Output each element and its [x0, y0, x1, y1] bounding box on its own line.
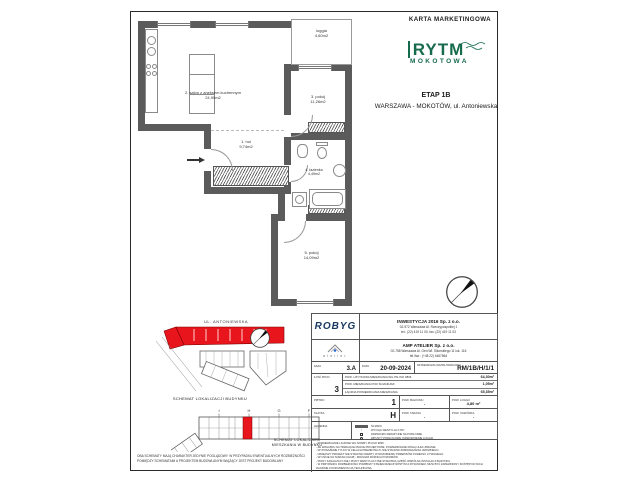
architect-row: atelier AMP ATELIER Sp. z o.o. 02-758 Wa… — [312, 340, 498, 362]
legend-row: LEGENDA ŚCIANKI ↑ WYCIĄG WENTYLACYJNY DR… — [312, 422, 498, 440]
site-schematic-caption: SCHEMAT LOKALIZACJI BUDYNKU — [155, 396, 265, 401]
project-logo-text: RYTM — [408, 41, 465, 58]
atelier-logo: atelier — [323, 344, 348, 358]
area-line: POW. UŻYTKOWA MIESZKANIA WG PN-ISO 98366… — [343, 374, 497, 381]
wall-segment — [284, 137, 291, 165]
garden-cell: POW. OGRÓDKA- — [450, 409, 498, 421]
revision-door-icon — [355, 433, 368, 436]
wall-segment — [306, 214, 352, 221]
areas-list: POW. UŻYTKOWA MIESZKANIA WG PN-ISO 98366… — [343, 374, 498, 395]
section-letter: G — [277, 408, 280, 413]
area-line: ŁĄCZNA POWIERZCHNIA MIESZKANIA65,35m² — [343, 389, 497, 395]
area-line: POW. MIESZKANIA POD ŚCIANKAMI1,05m² — [343, 381, 497, 388]
atelier-house-icon — [327, 344, 343, 353]
logo-waves-icon — [460, 41, 490, 53]
staircase-cell: KLATKAH — [312, 409, 400, 421]
wall-segment — [271, 214, 278, 306]
wardrobe-hatch — [308, 122, 345, 133]
door-arc — [284, 221, 306, 243]
building-wing — [171, 433, 202, 452]
island-divider — [189, 74, 215, 75]
toilet-icon — [317, 147, 327, 159]
room-label-pokoj3: 3. pokój11,26m2 — [298, 94, 338, 104]
loggia-outline — [291, 19, 352, 65]
wall-segment — [138, 124, 211, 131]
washer-drum-icon — [295, 195, 304, 204]
compass-icon — [249, 327, 271, 349]
window-marker — [215, 21, 249, 28]
marketing-card-page: KARTA MARKETINGOWA RYTM MOKOTOWA ETAP 1B… — [130, 11, 498, 471]
room-label-salon: 2. salon z aneksem kuchennym24,90m2 — [183, 90, 243, 100]
highlighted-unit — [243, 417, 252, 439]
legend-title-cell: LEGENDA — [312, 422, 352, 439]
section-letter: H — [248, 408, 251, 413]
street-line — [156, 341, 196, 391]
wall-segment — [284, 64, 291, 115]
stove-burner-icon — [152, 71, 157, 76]
washbasin-icon — [297, 144, 308, 158]
section-letter: I — [218, 408, 219, 413]
stove-burner-icon — [146, 71, 151, 76]
floor-row: PIĘTRO1 POW. BALKONU- POW. LOGGII4,80 m² — [312, 396, 498, 409]
vent-arrow-icon: ↑ — [355, 429, 368, 432]
room-label-loggia: loggia4,60m2 — [299, 28, 344, 38]
room-label-lazienka: 4. łazienka4,49m2 — [295, 168, 333, 177]
legend-items: ŚCIANKI ↑ WYCIĄG WENTYLACYJNY DRZWICZKI … — [352, 422, 498, 439]
door-arc — [211, 149, 233, 171]
page-title: KARTA MARKETINGOWA — [409, 16, 491, 23]
staircase-row: KLATKAH POW. TARASU- POW. OGRÓDKA- — [312, 409, 498, 422]
entrance-arrowhead-icon — [199, 157, 205, 163]
table-disclaimer: - POWIERZCHNIE LICZONE WG NORMY PN-ISO 9… — [312, 440, 498, 472]
date-cell: DATA20-09-2024 — [360, 362, 415, 373]
architect-info: AMP ATELIER Sp. z o.o. 02-758 Warszawa A… — [360, 340, 498, 361]
floor-plan: 1. hol9,74m2 2. salon z aneksem kuchenny… — [131, 12, 361, 312]
areas-row: ILOŚĆ POKOI 3 POW. UŻYTKOWA MIESZKANIA W… — [312, 374, 498, 396]
wall-segment — [204, 187, 291, 194]
developer-info: INWESTYCJA 2016 Sp. z o.o. 02-972 Warsza… — [360, 314, 498, 339]
floor-cell: PIĘTRO1 — [312, 396, 400, 408]
wall-segment — [345, 64, 352, 306]
project-address: WARSZAWA - MOKOTÓW, ul. Antoniewska — [359, 103, 513, 110]
room-label-pokoj5: 5. pokój14,09m2 — [289, 250, 334, 260]
room-label-hol: 1. hol9,74m2 — [226, 139, 266, 149]
compass-icon — [444, 274, 480, 310]
faza-cell: FAZA3.A — [312, 362, 360, 373]
loggia-cell: POW. LOGGII4,80 m² — [450, 396, 498, 408]
rooms-count-cell: ILOŚĆ POKOI 3 — [312, 374, 343, 395]
stove-burner-icon — [152, 64, 157, 69]
window-marker — [157, 21, 191, 28]
sink-icon — [147, 47, 156, 56]
building-outline — [250, 351, 286, 385]
sink-icon — [147, 36, 156, 45]
balcony-cell: POW. BALKONU- — [400, 396, 450, 408]
wall-segment — [204, 124, 211, 149]
developer-row: ROBYG INWESTYCJA 2016 Sp. z o.o. 02-972 … — [312, 314, 498, 340]
site-schematic: UL. ANTONIEWSKA — [146, 315, 306, 395]
wall-segment — [138, 21, 145, 131]
unit-info-table: ROBYG INWESTYCJA 2016 Sp. z o.o. 02-972 … — [311, 313, 498, 472]
stove-burner-icon — [146, 64, 151, 69]
architect-logo-cell: atelier — [312, 340, 360, 361]
toilet-tank-icon — [316, 142, 328, 146]
street-label: UL. ANTONIEWSKA — [204, 319, 248, 324]
terrace-cell: POW. TARASU- — [400, 409, 450, 421]
kitchen-island — [189, 54, 215, 114]
window-marker — [296, 299, 334, 306]
project-logo-subtext: MOKOTOWA — [410, 58, 496, 65]
bathtub-inner — [312, 192, 343, 206]
developer-logo-cell: ROBYG — [312, 314, 360, 339]
boiler-icon — [333, 164, 346, 177]
window-marker — [298, 64, 332, 71]
room-boundary-line — [211, 130, 284, 131]
robyg-logo: ROBYG — [315, 321, 357, 332]
phase-row: FAZA3.A DATA20-09-2024 NR MIESZKANIA (NA… — [312, 362, 498, 374]
project-stage: ETAP 1B — [376, 92, 496, 99]
project-logo: RYTM MOKOTOWA — [376, 41, 496, 65]
unit-number-cell: NR MIESZKANIA (NAZWA HANDLOWA) RM/1B/H/1… — [415, 362, 498, 373]
